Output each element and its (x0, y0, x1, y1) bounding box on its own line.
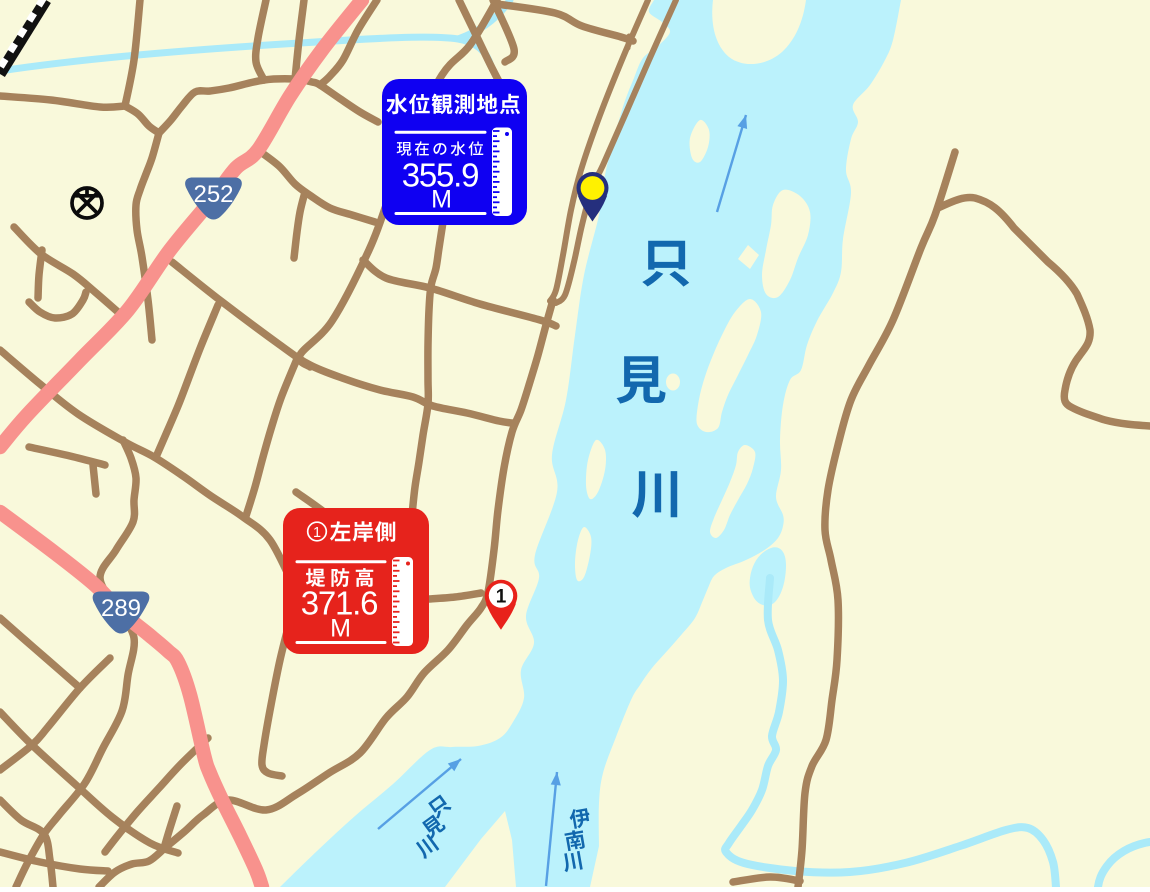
svg-text:289: 289 (101, 595, 141, 622)
svg-text:M: M (330, 615, 351, 643)
svg-text:M: M (431, 186, 452, 214)
svg-text:1: 1 (496, 587, 507, 608)
svg-text:1: 1 (313, 525, 321, 541)
svg-text:252: 252 (193, 181, 233, 208)
